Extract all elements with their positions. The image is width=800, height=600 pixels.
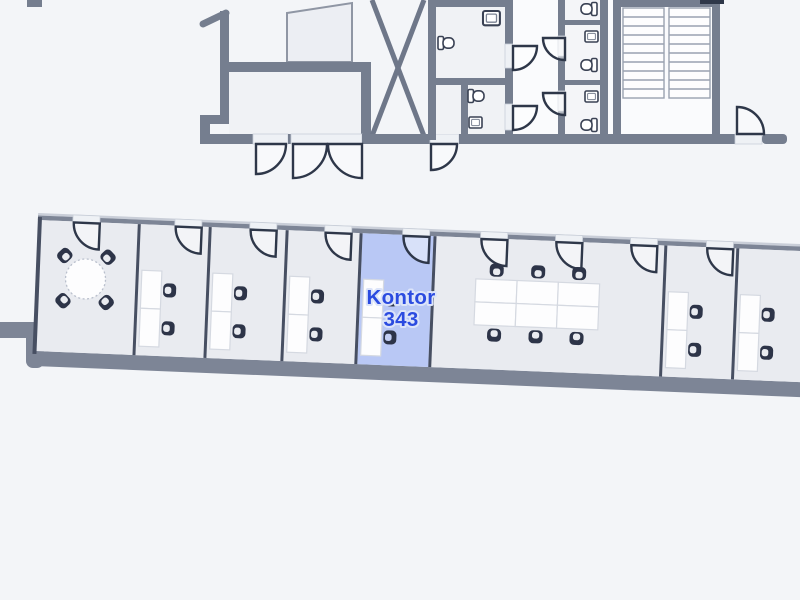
toilet-icon xyxy=(581,3,597,16)
wall xyxy=(226,62,371,72)
chair-icon xyxy=(161,321,175,336)
desk-icon xyxy=(210,273,233,350)
upper-structures xyxy=(27,0,787,178)
chair-icon xyxy=(528,330,543,344)
door-gap xyxy=(505,104,513,130)
wall xyxy=(565,20,600,25)
wall xyxy=(461,85,468,140)
wall xyxy=(361,62,371,138)
wall xyxy=(428,78,513,85)
wall xyxy=(613,0,621,140)
door-icon xyxy=(293,144,327,178)
chair-icon xyxy=(572,267,587,281)
desk-icon xyxy=(737,295,760,372)
upper-room-block xyxy=(200,3,371,143)
wall-stub xyxy=(27,0,42,7)
door-icon xyxy=(431,144,457,170)
wall xyxy=(565,80,600,85)
open-office-furniture xyxy=(473,263,600,346)
door-icon xyxy=(256,144,286,174)
chair-icon xyxy=(760,345,774,360)
room-interior xyxy=(436,85,461,134)
chair-icon xyxy=(688,343,702,358)
door-gap xyxy=(735,134,762,144)
wall xyxy=(600,0,608,140)
toilet-icon xyxy=(581,119,597,132)
room-interior xyxy=(229,70,361,136)
sink-icon xyxy=(469,117,482,128)
wall xyxy=(712,0,720,134)
roof-slab xyxy=(287,3,352,62)
gap-strip xyxy=(608,0,613,134)
wall xyxy=(428,0,436,140)
chair-icon xyxy=(569,332,584,346)
door-gap xyxy=(291,134,362,144)
floor-plan-viewport: Kontor 343 xyxy=(0,0,800,600)
wc-rooms xyxy=(428,0,513,140)
chair-icon xyxy=(689,305,703,320)
floor-plan-map: Kontor 343 xyxy=(0,0,800,600)
sink-icon xyxy=(585,31,598,42)
door-gap xyxy=(505,44,513,68)
door-icon xyxy=(737,107,764,134)
room-number: 343 xyxy=(383,308,418,331)
chair-icon xyxy=(234,286,248,301)
chair-icon xyxy=(531,265,546,279)
wall xyxy=(558,0,565,140)
door-gap xyxy=(253,134,288,144)
door-leaf xyxy=(700,0,724,4)
chair-icon xyxy=(487,328,502,342)
wall xyxy=(428,0,513,7)
chair-icon xyxy=(489,263,504,277)
chair-icon xyxy=(309,327,323,342)
staircase xyxy=(613,0,764,140)
chair-icon xyxy=(163,283,177,298)
chair-icon xyxy=(761,308,775,323)
chair-icon xyxy=(383,330,397,345)
toilet-icon xyxy=(468,90,484,103)
sink-icon xyxy=(483,11,500,25)
desk-icon xyxy=(665,292,688,369)
desk-icon xyxy=(287,276,310,353)
room-name: Kontor xyxy=(367,286,436,309)
chair-icon xyxy=(232,324,246,339)
door-icon xyxy=(328,144,362,178)
x-braced-shaft xyxy=(372,0,424,136)
sink-icon xyxy=(585,91,598,102)
desk-icon xyxy=(139,270,162,347)
round-table-icon xyxy=(65,258,107,300)
south-wall xyxy=(200,134,787,144)
chair-icon xyxy=(311,289,325,304)
toilet-icon xyxy=(581,59,597,72)
toilet-icon xyxy=(438,37,454,50)
